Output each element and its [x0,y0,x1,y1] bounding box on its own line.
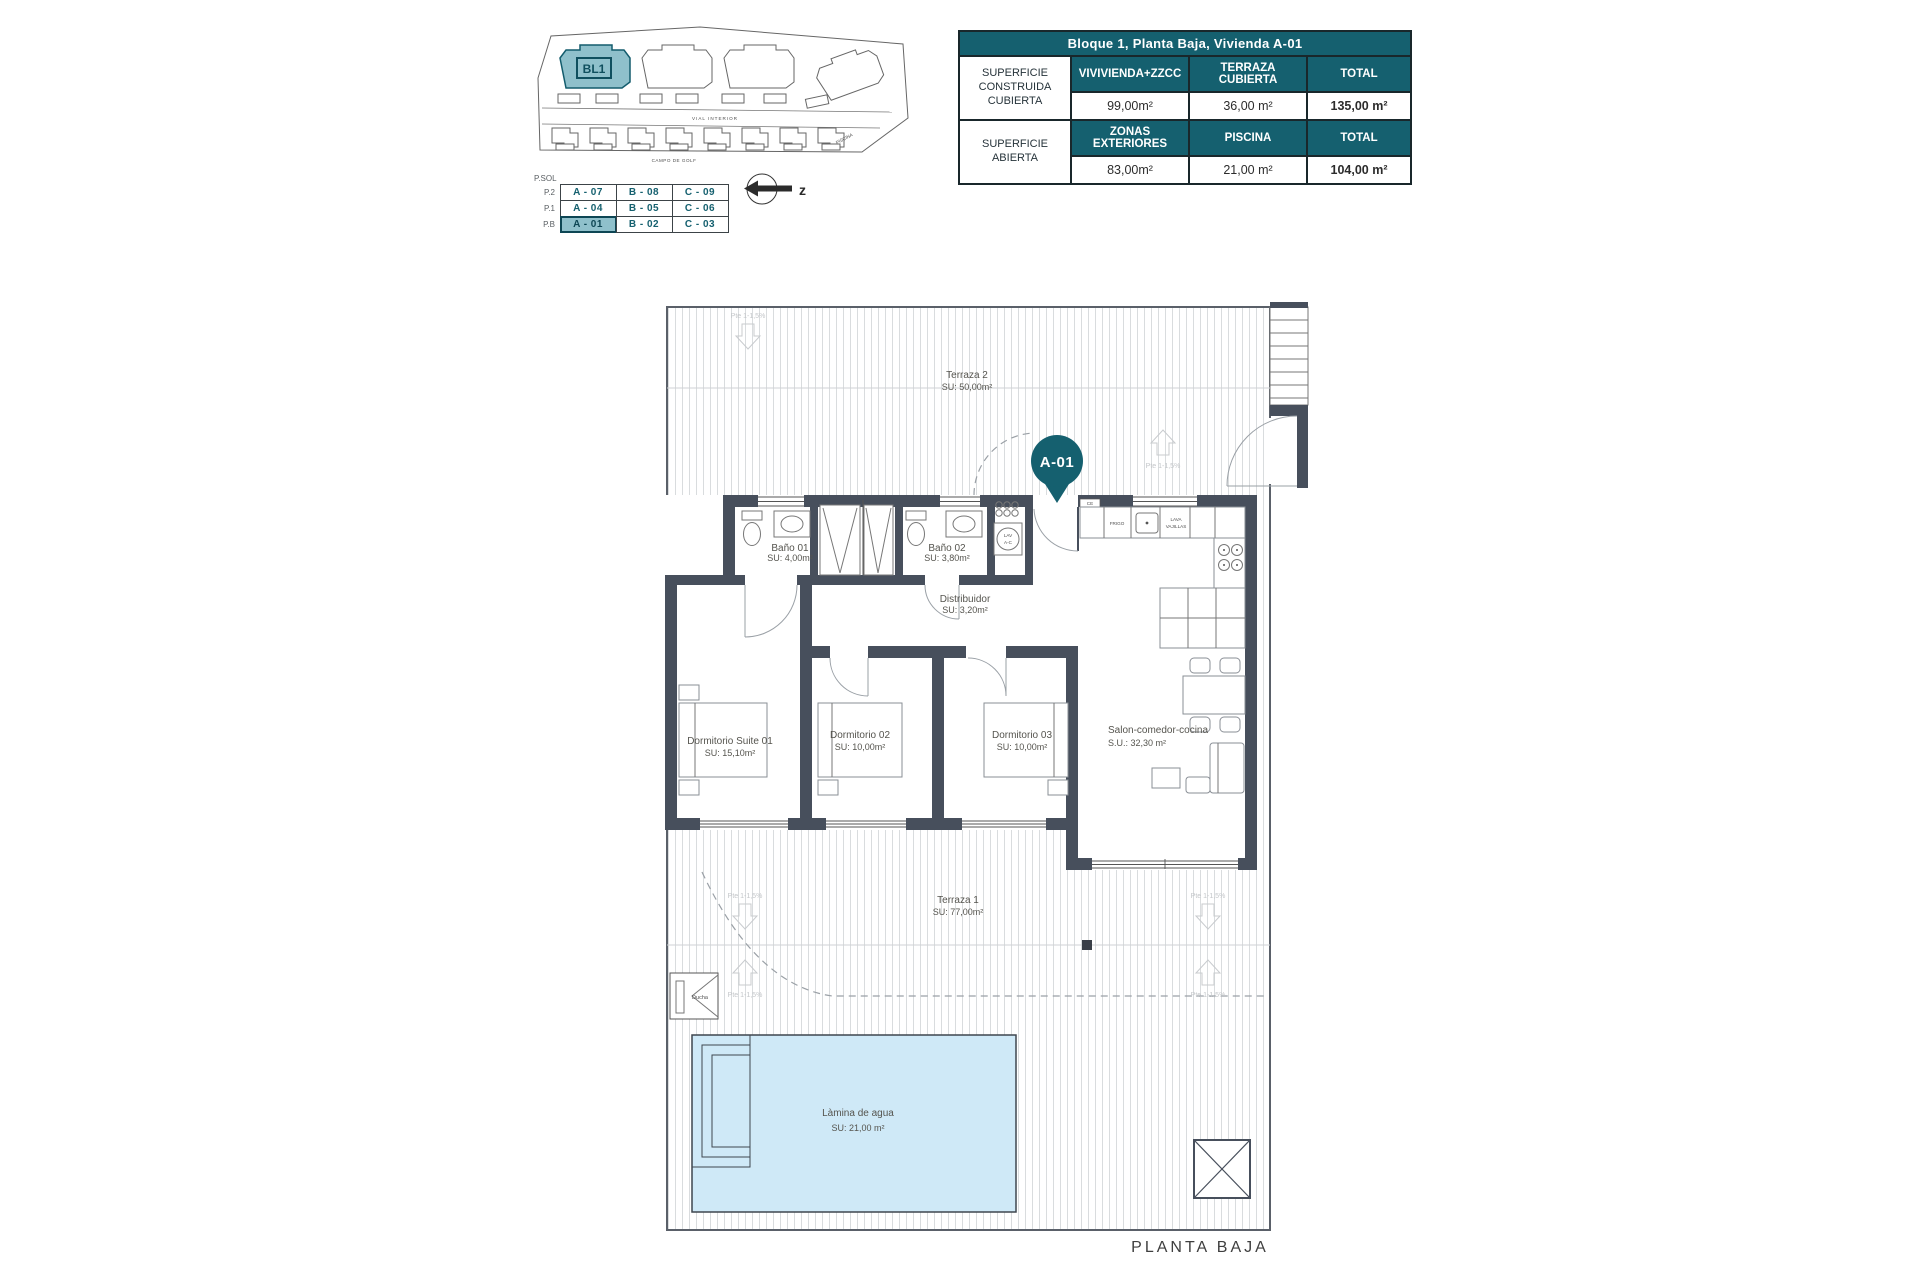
bl1-label: BL1 [583,62,606,76]
svg-text:Terraza 2: Terraza 2 [946,370,988,381]
site-block-2 [642,45,712,88]
site-block-3 [724,45,794,88]
svg-text:SU: 4,00m²: SU: 4,00m² [767,553,813,563]
svg-text:SU: 21,00 m²: SU: 21,00 m² [831,1123,884,1133]
floor-plan: Pte 1-1,5% Pte 1-1,5% [630,280,1350,1280]
svg-text:Pte 1-1,5%: Pte 1-1,5% [1146,463,1181,470]
value-terraza-cubierta: 36,00 m² [1189,92,1307,120]
summary-title: Bloque 1, Planta Baja, Vivienda A-01 [959,31,1411,56]
level-label: P.B [532,216,560,232]
svg-text:SU: 3,80m²: SU: 3,80m² [924,553,970,563]
ce-box: CE [1080,499,1100,507]
x-square [1194,1140,1250,1198]
col-header: TERRAZA CUBIERTA [1189,56,1307,92]
level-label: P.1 [532,200,560,216]
kitchen-island [1160,588,1245,648]
svg-text:Dormitorio Suite 01: Dormitorio Suite 01 [687,736,773,747]
col-header: VIVIVIENDA+ZZCC [1071,56,1189,92]
group-label-abierta: SUPERFICIE ABIERTA [959,120,1071,184]
svg-text:Pte 1-1,5%: Pte 1-1,5% [731,313,766,320]
wardrobe [820,505,893,575]
unit-cell: C - 06 [672,200,729,217]
surface-summary-table: Bloque 1, Planta Baja, Vivienda A-01 SUP… [958,30,1412,185]
north-arrow: z [744,174,806,204]
plan-title: PLANTA BAJA [1131,1239,1269,1256]
value-total-construida: 135,00 m² [1307,92,1411,120]
unit-matrix: P.2 A - 07 B - 08 C - 09 P.1 A - 04 B - … [532,184,728,232]
coffee-table [1152,768,1180,788]
svg-text:S.U.: 32,30 m²: S.U.: 32,30 m² [1108,738,1166,748]
value-total-abierta: 104,00 m² [1307,156,1411,184]
unit-cell: B - 08 [616,184,673,201]
value-vivienda: 99,00m² [1071,92,1189,120]
north-label: z [799,182,806,198]
svg-text:Terraza 1: Terraza 1 [937,895,979,906]
col-header: TOTAL [1307,120,1411,156]
value-piscina: 21,00 m² [1189,156,1307,184]
unit-matrix-header: P.SOL [534,174,557,183]
unit-cell: B - 02 [616,216,673,233]
unit-cell-highlighted: A - 01 [560,216,617,233]
svg-text:SU: 10,00m²: SU: 10,00m² [997,742,1048,752]
unit-cell: A - 04 [560,200,617,217]
svg-text:Distribuidor: Distribuidor [940,594,991,605]
svg-text:Làmina de agua: Làmina de agua [822,1108,894,1119]
group-label-construida: SUPERFICIE CONSTRUIDA CUBIERTA [959,56,1071,120]
value-zonas-exteriores: 83,00m² [1071,156,1189,184]
svg-text:Pte 1-1,5%: Pte 1-1,5% [728,893,763,900]
svg-text:SU: 15,10m²: SU: 15,10m² [705,748,756,758]
col-header: TOTAL [1307,56,1411,92]
svg-text:Salon-comedor-cocina: Salon-comedor-cocina [1108,725,1208,736]
unit-cell: B - 05 [616,200,673,217]
salon-footprint-extension [1066,830,1257,870]
svg-text:SU: 3,20m²: SU: 3,20m² [942,605,988,615]
unit-cell: C - 03 [672,216,729,233]
svg-text:Dormitorio 02: Dormitorio 02 [830,730,890,741]
level-label: P.2 [532,184,560,200]
svg-text:SU: 50,00m²: SU: 50,00m² [942,382,993,392]
golf-label: CAMPO DE GOLF [652,158,697,163]
svg-text:CE: CE [1087,501,1093,506]
svg-text:Pte 1-1,5%: Pte 1-1,5% [728,992,763,999]
outdoor-shower: Ducha [670,973,718,1019]
svg-text:Pte 1-1,5%: Pte 1-1,5% [1191,992,1226,999]
shower-label: Ducha [692,995,709,1001]
svg-text:VAJILLAS: VAJILLAS [1166,524,1187,529]
room-label-bano01: Baño 01 SU: 4,00m² [767,543,813,563]
drain [1082,940,1092,950]
svg-text:Dormitorio 03: Dormitorio 03 [992,730,1052,741]
room-label-bano02: Baño 02 SU: 3,80m² [924,543,970,563]
col-header: ZONAS EXTERIORES [1071,120,1189,156]
svg-text:LAV: LAV [1004,533,1013,538]
col-header: PISCINA [1189,120,1307,156]
svg-text:A-C: A-C [1004,540,1013,545]
dishwasher-label: LAVA [1170,517,1182,522]
svg-text:SU: 10,00m²: SU: 10,00m² [835,742,886,752]
fridge-label: FRIGO [1110,521,1125,526]
svg-text:Pte 1-1,5%: Pte 1-1,5% [1191,893,1226,900]
unit-cell: C - 09 [672,184,729,201]
unit-pin-label: A-01 [1040,454,1075,471]
room-label-distribuidor: Distribuidor SU: 3,20m² [940,594,991,615]
svg-text:SU: 77,00m²: SU: 77,00m² [933,907,984,917]
unit-cell: A - 07 [560,184,617,201]
road-label: VIAL INTERIOR [692,116,738,121]
